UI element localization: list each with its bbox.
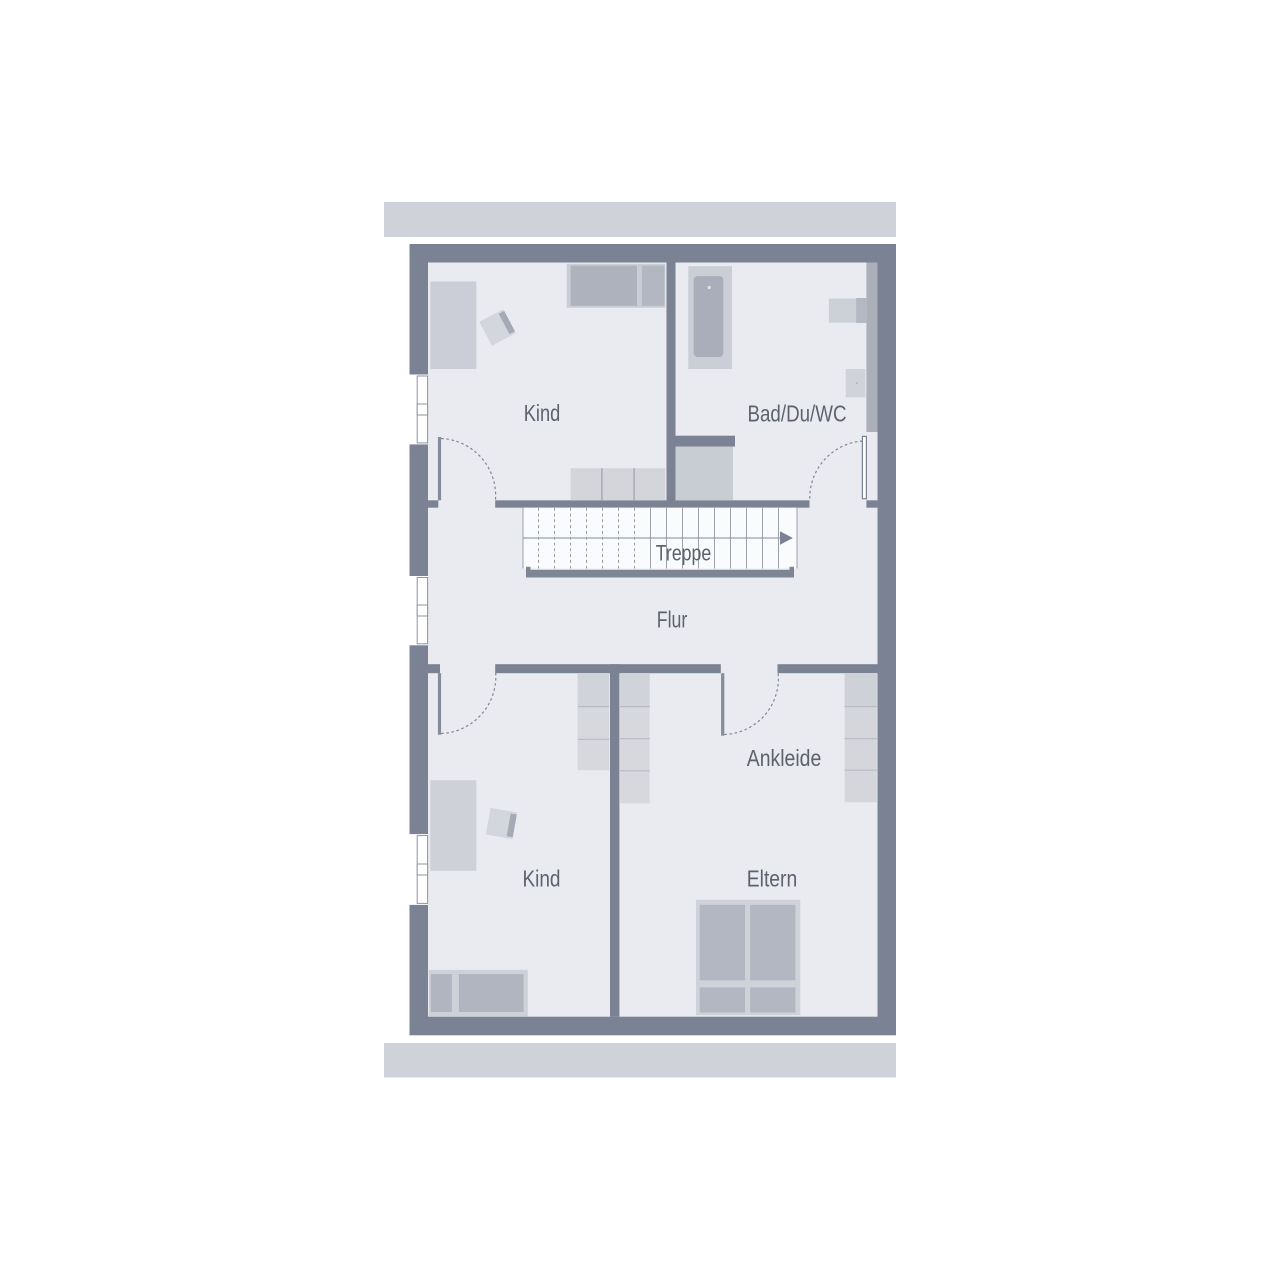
svg-text:Kind: Kind (524, 400, 561, 426)
svg-text:Flur: Flur (657, 607, 688, 633)
svg-text:Bad/Du/WC: Bad/Du/WC (748, 400, 847, 426)
svg-text:Eltern: Eltern (747, 866, 798, 892)
svg-text:Kind: Kind (523, 866, 561, 892)
svg-text:Treppe: Treppe (656, 541, 712, 566)
svg-text:Ankleide: Ankleide (747, 745, 822, 771)
